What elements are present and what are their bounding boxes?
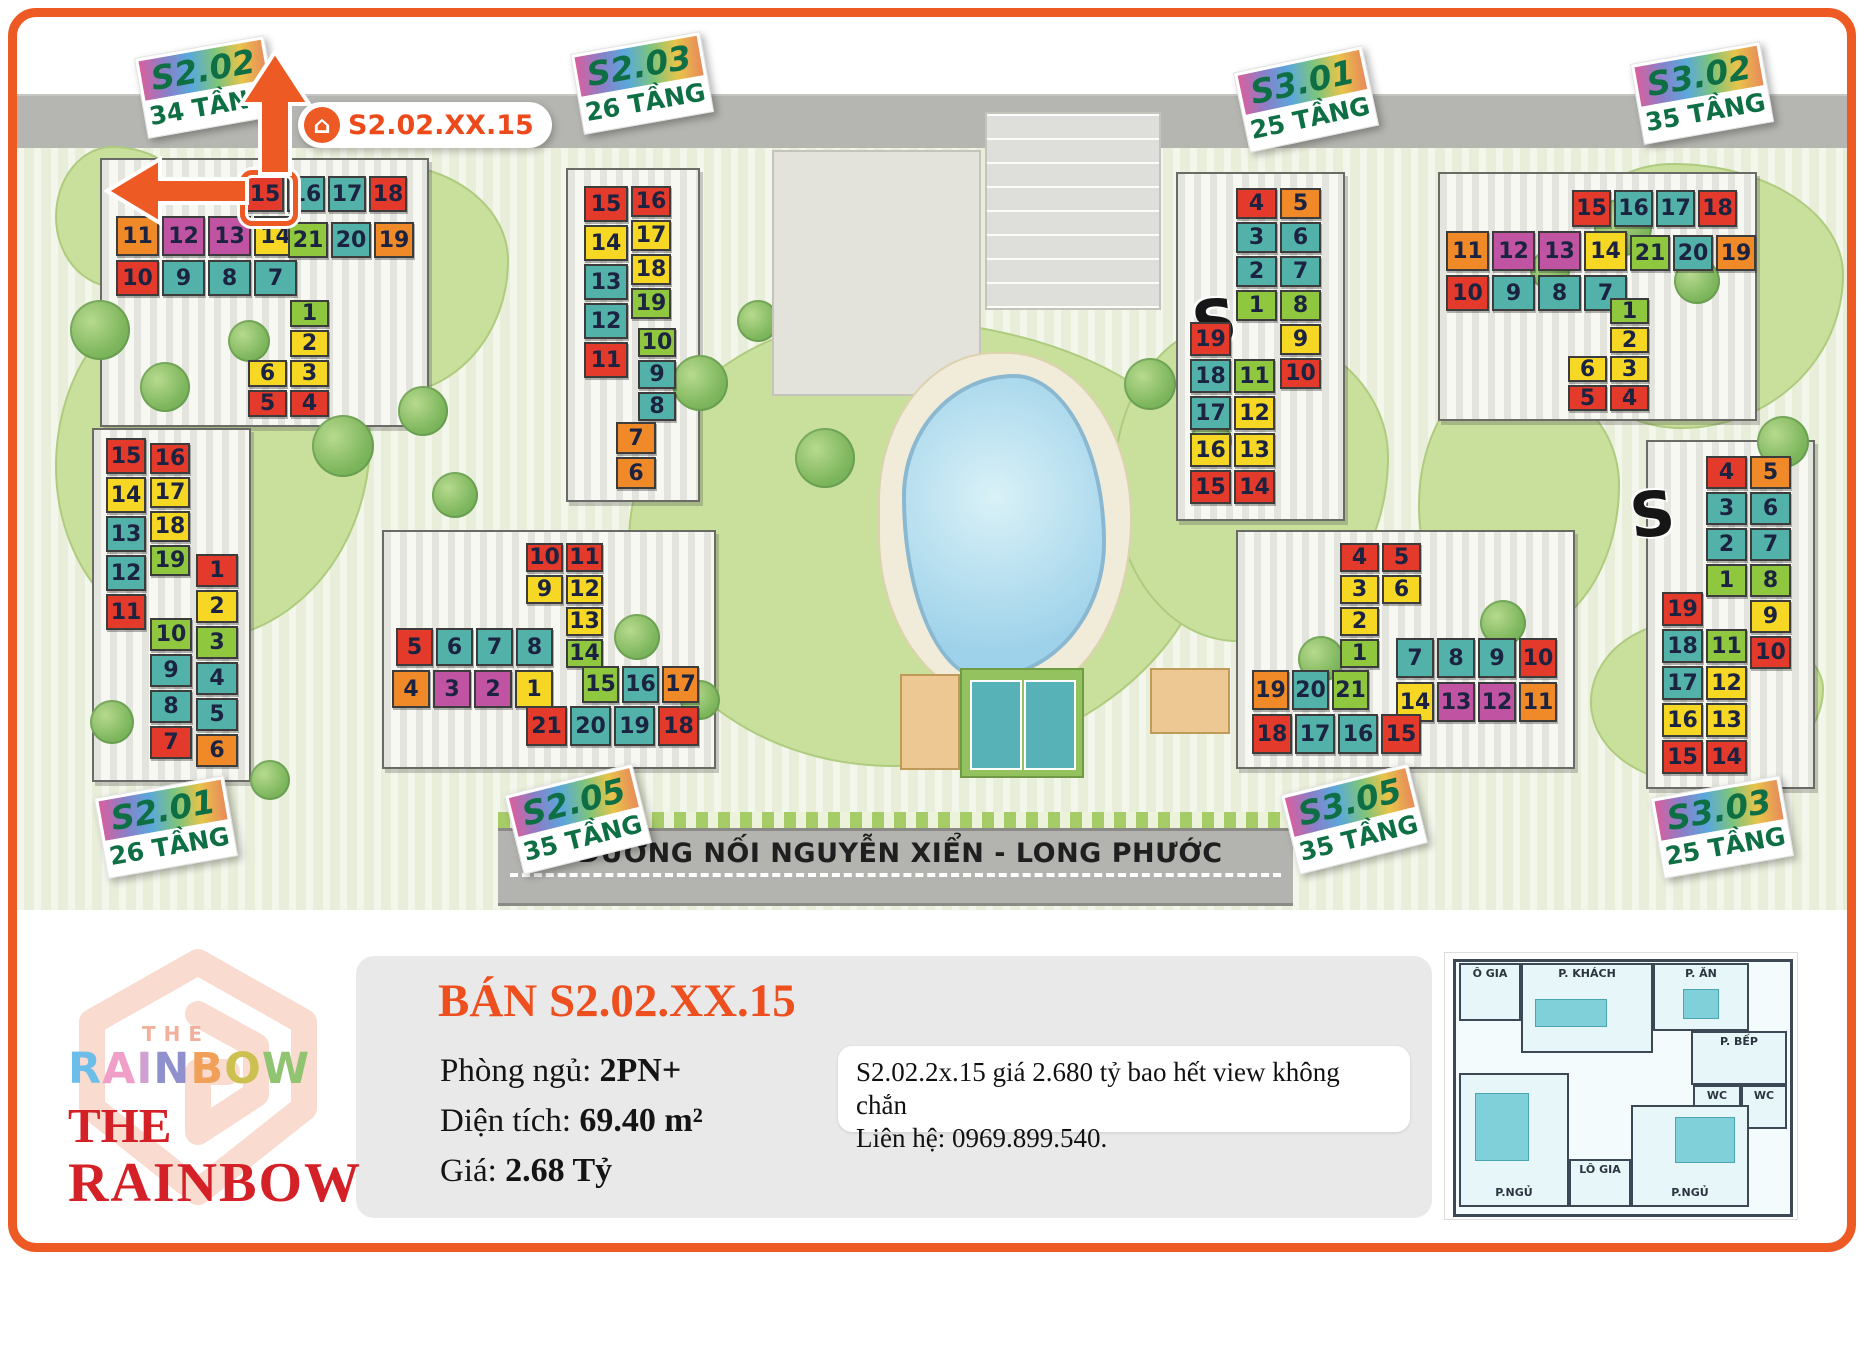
s202-unit-group: 10987: [116, 260, 297, 296]
s303-unit-17: 17: [1662, 666, 1703, 700]
s302-unit-15: 15: [1572, 190, 1611, 227]
s202-unit-18: 18: [369, 176, 407, 212]
s205-unit-9: 9: [526, 575, 563, 604]
map-watermark-s: S: [1626, 476, 1678, 553]
flyer-page: ĐƯỜNG NỐI NGUYỄN XIỂN - LONG PHƯỚC S S 1…: [0, 0, 1864, 1366]
s301-unit-18: 18: [1190, 359, 1231, 393]
s203-unit-13: 13: [584, 264, 628, 300]
s302-unit-5: 5: [1568, 385, 1607, 411]
room-kitchen: P. BẾP: [1691, 1031, 1787, 1085]
s203-unit-10: 10: [638, 328, 676, 357]
tree-icon: [795, 428, 855, 488]
s303-unit-3: 3: [1706, 492, 1747, 525]
s302-unit-group: 126354: [1568, 298, 1649, 411]
s303-unit-19: 19: [1662, 592, 1703, 626]
s201-unit-17: 17: [150, 477, 190, 508]
room-loggia: LÔ GIA: [1569, 1159, 1631, 1207]
s303-unit-18: 18: [1662, 629, 1703, 663]
s301-unit-6: 6: [1280, 222, 1321, 253]
s201-unit-19: 19: [150, 545, 190, 576]
basketball-court: [1150, 668, 1230, 734]
s305-unit-15: 15: [1381, 714, 1421, 754]
s301-unit-10: 10: [1280, 358, 1321, 389]
s302-unit-group: 11121314: [1446, 231, 1627, 271]
s201-unit-12: 12: [106, 555, 146, 591]
s202-unit-2: 2: [290, 330, 329, 357]
s301-unit-16: 16: [1190, 433, 1231, 467]
room-balcony: Ô GIA: [1459, 963, 1521, 1021]
s305-unit-16: 16: [1338, 714, 1378, 754]
s303-unit-11: 11: [1706, 629, 1747, 663]
s305-unit-3: 3: [1340, 575, 1379, 604]
s203-unit-group: 1098: [638, 328, 676, 421]
s201-unit-13: 13: [106, 516, 146, 552]
s301-unit-9: 9: [1280, 324, 1321, 355]
logo-letter: N: [153, 1044, 190, 1094]
s203-unit-18: 18: [631, 254, 671, 285]
s305-unit-12: 12: [1478, 682, 1516, 722]
s301-unit-8: 8: [1280, 290, 1321, 321]
s302-unit-3: 3: [1610, 356, 1649, 382]
tree-icon: [398, 386, 448, 436]
s302-unit-10: 10: [1446, 275, 1489, 311]
s303-unit-group: 191811171216131514: [1662, 592, 1747, 774]
s203-unit-11: 11: [584, 342, 628, 378]
s205-unit-19: 19: [614, 706, 655, 746]
listing-info-panel: BÁN S2.02.XX.15 Phòng ngủ: 2PN+ Diện tíc…: [356, 956, 1432, 1218]
s305-unit-2: 2: [1340, 607, 1379, 636]
bedrooms-row: Phòng ngủ: 2PN+: [440, 1052, 681, 1090]
logo-rainbow-colored: RAINBOW: [68, 1044, 310, 1094]
s201-unit-group: 16171819: [150, 443, 190, 576]
s201-unit-group: 123456: [196, 554, 238, 767]
s203-unit-14: 14: [584, 225, 628, 261]
s202-unit-9: 9: [162, 260, 205, 296]
listing-title: BÁN S2.02.XX.15: [438, 974, 796, 1028]
s302-unit-14: 14: [1584, 231, 1627, 271]
s302-unit-20: 20: [1673, 235, 1713, 271]
s203-unit-8: 8: [638, 392, 676, 421]
s203-unit-19: 19: [631, 288, 671, 319]
s301-unit-12: 12: [1234, 396, 1275, 430]
s201-unit-group: 1514131211: [106, 438, 146, 630]
s302-unit-group: 15161718: [1572, 190, 1737, 227]
s305-unit-1: 1: [1340, 639, 1379, 668]
s303-unit-7: 7: [1750, 528, 1791, 561]
s301-unit-17: 17: [1190, 396, 1231, 430]
s301-unit-3: 3: [1236, 222, 1277, 253]
s301-unit-15: 15: [1190, 470, 1231, 504]
s301-unit-5: 5: [1280, 188, 1321, 219]
s205-unit-4: 4: [392, 670, 430, 708]
s205-unit-3: 3: [433, 670, 471, 708]
s301-unit-1: 1: [1236, 290, 1277, 321]
tree-icon: [140, 362, 190, 412]
s305-unit-8: 8: [1437, 638, 1475, 678]
s201-unit-15: 15: [106, 438, 146, 474]
s205-unit-7: 7: [476, 628, 513, 666]
area-value: 69.40 m²: [579, 1102, 703, 1139]
s202-unit-3: 3: [290, 360, 329, 387]
s303-unit-12: 12: [1706, 666, 1747, 700]
s305-unit-4: 4: [1340, 543, 1379, 572]
logo-the-serif: THE: [68, 1100, 171, 1152]
s302-unit-11: 11: [1446, 231, 1489, 271]
tree-icon: [432, 472, 478, 518]
tree-icon: [250, 760, 290, 800]
s202-unit-19: 19: [374, 222, 414, 258]
logo-rainbow-serif: RAINBOW: [68, 1154, 362, 1212]
s301-unit-13: 13: [1234, 433, 1275, 467]
s201-unit-7: 7: [150, 726, 192, 759]
s201-unit-3: 3: [196, 626, 238, 659]
sport-court: [900, 674, 960, 770]
s302-unit-21: 21: [1630, 235, 1670, 271]
s301-unit-11: 11: [1234, 359, 1275, 393]
s303-unit-5: 5: [1750, 456, 1791, 489]
price-value: 2.68 Tỷ: [505, 1152, 612, 1189]
s303-unit-8: 8: [1750, 564, 1791, 597]
s303-unit-6: 6: [1750, 492, 1791, 525]
s301-unit-14: 14: [1234, 470, 1275, 504]
tree-icon: [672, 355, 728, 411]
s303-unit-16: 16: [1662, 703, 1703, 737]
s205-unit-2: 2: [474, 670, 512, 708]
s203-unit-group: 1514131211: [584, 186, 628, 378]
room-dining: P. ĂN: [1653, 963, 1749, 1031]
unit-badge-label: S2.02.XX.15: [348, 110, 534, 141]
s202-unit-group: 212019: [288, 222, 414, 258]
rainbow-logo: THE RAINBOW THE RAINBOW: [50, 942, 360, 1232]
s305-unit-group: 78910: [1396, 638, 1557, 678]
s205-unit-20: 20: [570, 706, 611, 746]
s203-unit-group: 16171819: [631, 186, 671, 319]
s201-unit-9: 9: [150, 654, 192, 687]
s205-unit-13: 13: [566, 607, 603, 636]
s305-unit-group: 18171615: [1252, 714, 1421, 754]
s201-unit-8: 8: [150, 690, 192, 723]
s202-unit-8: 8: [208, 260, 251, 296]
s303-unit-4: 4: [1706, 456, 1747, 489]
s305-unit-21: 21: [1332, 670, 1369, 710]
s205-unit-11: 11: [566, 543, 603, 572]
tennis-courts: [960, 668, 1084, 778]
s202-unit-group: 126354: [248, 300, 329, 417]
s201-unit-10: 10: [150, 618, 192, 651]
s202-unit-17: 17: [328, 176, 366, 212]
area-row: Diện tích: 69.40 m²: [440, 1102, 703, 1140]
unit-badge: ⌂ S2.02.XX.15: [298, 102, 552, 148]
s302-unit-9: 9: [1492, 275, 1535, 311]
s205-unit-14: 14: [566, 639, 603, 668]
s205-unit-group: 4321: [392, 670, 553, 708]
logo-letter: B: [190, 1044, 224, 1094]
s201-unit-group: 10987: [150, 618, 192, 759]
s302-unit-2: 2: [1610, 327, 1649, 353]
s305-unit-17: 17: [1295, 714, 1335, 754]
s205-unit-5: 5: [396, 628, 433, 666]
s202-unit-5: 5: [248, 390, 287, 417]
s201-unit-14: 14: [106, 477, 146, 513]
note-line-2: Liên hệ: 0969.899.540.: [856, 1122, 1392, 1155]
price-label: Giá:: [440, 1153, 505, 1189]
s303-unit-15: 15: [1662, 740, 1703, 774]
s302-unit-13: 13: [1538, 231, 1581, 271]
s305-unit-18: 18: [1252, 714, 1292, 754]
s205-unit-16: 16: [622, 666, 659, 703]
logo-letter: I: [136, 1044, 153, 1094]
s303-unit-14: 14: [1706, 740, 1747, 774]
home-icon: ⌂: [304, 107, 340, 143]
s301-unit-19: 19: [1190, 322, 1231, 356]
s303-unit-2: 2: [1706, 528, 1747, 561]
s302-unit-18: 18: [1698, 190, 1737, 227]
s303-unit-9: 9: [1750, 600, 1791, 633]
s201-unit-4: 4: [196, 662, 238, 695]
room-bedroom-2: P.NGỦ: [1631, 1105, 1749, 1207]
area-label: Diện tích:: [440, 1103, 579, 1139]
tree-icon: [1124, 358, 1176, 410]
s302-unit-6: 6: [1568, 356, 1607, 382]
s202-unit-4: 4: [290, 390, 329, 417]
s202-unit-7: 7: [254, 260, 297, 296]
tree-icon: [614, 614, 660, 660]
s302-unit-group: 212019: [1630, 235, 1756, 271]
s203-unit-6: 6: [616, 457, 656, 489]
s205-unit-12: 12: [566, 575, 603, 604]
left-arrow-icon: [104, 156, 250, 226]
s205-unit-10: 10: [526, 543, 563, 572]
s302-unit-19: 19: [1716, 235, 1756, 271]
s205-unit-17: 17: [662, 666, 699, 703]
unit-floorplan-thumbnail: Ô GIA P. KHÁCH P. ĂN P. BẾP WC WC P.NGỦ …: [1444, 952, 1798, 1220]
s203-unit-16: 16: [631, 186, 671, 217]
s305-unit-group: 192021: [1252, 670, 1369, 710]
price-row: Giá: 2.68 Tỷ: [440, 1152, 612, 1190]
central-deck: [772, 150, 981, 396]
bedrooms-value: 2PN+: [600, 1052, 682, 1089]
s305-unit-13: 13: [1437, 682, 1475, 722]
s202-unit-1: 1: [290, 300, 329, 327]
s302-unit-17: 17: [1656, 190, 1695, 227]
bedrooms-label: Phòng ngủ:: [440, 1053, 600, 1089]
s203-unit-7: 7: [616, 422, 656, 454]
s205-unit-group: 21201918: [526, 706, 699, 746]
s205-unit-21: 21: [526, 706, 567, 746]
s302-unit-1: 1: [1610, 298, 1649, 324]
s301-unit-2: 2: [1236, 256, 1277, 287]
s205-unit-group: 5678: [396, 628, 553, 666]
logo-the-small: THE: [142, 1022, 210, 1046]
s203-unit-9: 9: [638, 360, 676, 389]
s301-unit-7: 7: [1280, 256, 1321, 287]
contact-note: S2.02.2x.15 giá 2.680 tỷ bao hết view kh…: [838, 1046, 1410, 1132]
s305-unit-5: 5: [1382, 543, 1421, 572]
s201-unit-18: 18: [150, 511, 190, 542]
s203-unit-12: 12: [584, 303, 628, 339]
s302-unit-4: 4: [1610, 385, 1649, 411]
s203-unit-group: 76: [616, 422, 656, 489]
tree-icon: [70, 300, 130, 360]
s205-unit-8: 8: [516, 628, 553, 666]
tennis-court-2: [1024, 680, 1076, 770]
s203-unit-17: 17: [631, 220, 671, 251]
s201-unit-6: 6: [196, 734, 238, 767]
s202-unit-6: 6: [248, 360, 287, 387]
logo-letter: O: [224, 1044, 262, 1094]
tree-icon: [312, 415, 374, 477]
logo-letter: A: [102, 1044, 136, 1094]
s305-unit-7: 7: [1396, 638, 1434, 678]
s202-unit-21: 21: [288, 222, 328, 258]
s205-unit-18: 18: [658, 706, 699, 746]
s302-unit-12: 12: [1492, 231, 1535, 271]
s202-unit-20: 20: [331, 222, 371, 258]
s305-unit-11: 11: [1519, 682, 1557, 722]
logo-letter: W: [262, 1044, 310, 1094]
s201-unit-2: 2: [196, 590, 238, 623]
s205-unit-group: 151617: [582, 666, 699, 703]
s201-unit-5: 5: [196, 698, 238, 731]
tree-icon: [90, 700, 134, 744]
s201-unit-1: 1: [196, 554, 238, 587]
s201-unit-11: 11: [106, 594, 146, 630]
s305-unit-20: 20: [1292, 670, 1329, 710]
note-line-1: S2.02.2x.15 giá 2.680 tỷ bao hết view kh…: [856, 1056, 1392, 1122]
parking-lot: [985, 112, 1161, 310]
s301-unit-4: 4: [1236, 188, 1277, 219]
s305-unit-6: 6: [1382, 575, 1421, 604]
s305-unit-9: 9: [1478, 638, 1516, 678]
s305-unit-19: 19: [1252, 670, 1289, 710]
room-living: P. KHÁCH: [1521, 963, 1653, 1053]
s205-unit-1: 1: [515, 670, 553, 708]
room-bedroom-1: P.NGỦ: [1459, 1073, 1569, 1207]
s202-unit-10: 10: [116, 260, 159, 296]
s301-unit-group: 191811171216131514: [1190, 322, 1275, 504]
tennis-court-1: [970, 680, 1022, 770]
s303-unit-13: 13: [1706, 703, 1747, 737]
logo-letter: R: [68, 1044, 102, 1094]
s201-unit-16: 16: [150, 443, 190, 474]
s203-unit-15: 15: [584, 186, 628, 222]
s205-unit-15: 15: [582, 666, 619, 703]
s205-unit-6: 6: [436, 628, 473, 666]
s303-unit-10: 10: [1750, 636, 1791, 669]
s302-unit-16: 16: [1614, 190, 1653, 227]
s305-unit-10: 10: [1519, 638, 1557, 678]
